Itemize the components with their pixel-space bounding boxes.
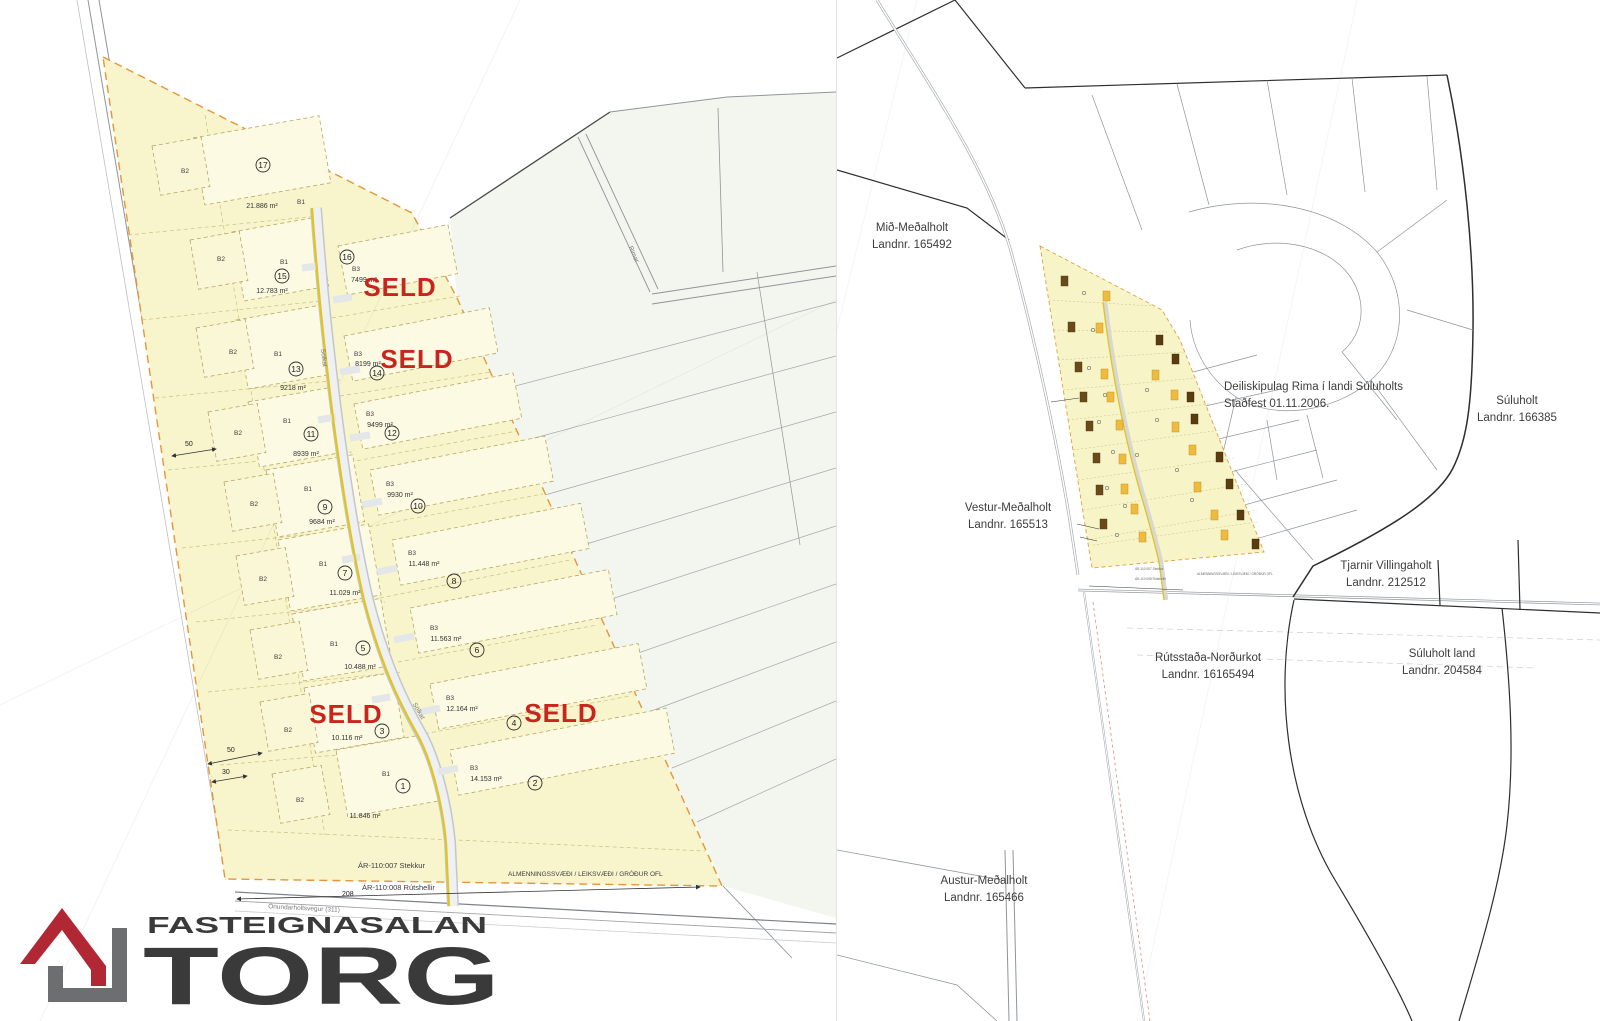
lot-16-number: 16 xyxy=(342,252,352,262)
lot-2-bcode: B3 xyxy=(470,765,478,772)
lot-12-bcode: B3 xyxy=(366,411,374,418)
dim-50b: 50 xyxy=(227,747,235,754)
note-rutshellir: ÁR-110:008 Rútshellir xyxy=(362,883,435,892)
lot-4-number: 4 xyxy=(512,718,517,728)
b1-label: B1 xyxy=(280,259,288,266)
lot-9-area: 9684 m² xyxy=(309,519,335,526)
lot-15-area: 12.783 m² xyxy=(256,288,288,295)
lot-2-area: 14.153 m² xyxy=(470,776,502,783)
mini-note-common: ALMENNINGSSVÆÐI / LEIKSVÆÐI / GRÓÐUR OFL xyxy=(1197,571,1273,576)
lot-2-number: 2 xyxy=(533,778,538,788)
lot-7-area: 11.029 m² xyxy=(330,590,362,597)
b2-label: B2 xyxy=(234,430,242,437)
overview-map: ÁR-110:007 Stekkur ÁR-110:008 Rútshellir… xyxy=(837,0,1600,1021)
lot-10-number: 10 xyxy=(413,501,423,511)
lot-7-number: 7 xyxy=(343,568,348,578)
parcel-suluholt-landnr: Landnr. 166385 xyxy=(1477,412,1557,424)
lot-9-number: 9 xyxy=(323,502,328,512)
dim-50a: 50 xyxy=(185,441,193,448)
parcel-suluholt-land-name: Súluholt land xyxy=(1409,648,1476,660)
lot-17-area: 21.886 m² xyxy=(246,203,278,210)
mini-note-stekkur: ÁR-110:007 Stekkur xyxy=(1135,567,1164,571)
parcel-vestur-medalholt-name: Vestur-Meðalholt xyxy=(965,502,1052,514)
b2-label: B2 xyxy=(259,576,267,583)
lot-1-number: 1 xyxy=(401,781,406,791)
logo-brand-main: TORG xyxy=(143,931,500,1021)
lot-14-bcode: B3 xyxy=(354,351,362,358)
b2-label: B2 xyxy=(181,168,189,175)
lot-13-area: 9218 m² xyxy=(280,385,306,392)
parcel-rutsstada-nordurkot-landnr: Landnr. 16165494 xyxy=(1162,669,1255,681)
lot-12-number: 12 xyxy=(387,428,397,438)
mini-note-rutshellir: ÁR-110:008 Rútshellir xyxy=(1135,577,1167,581)
b1-label: B1 xyxy=(319,561,327,568)
b2-label: B2 xyxy=(274,654,282,661)
b1-label: B1 xyxy=(297,199,305,206)
lot-12-area: 9499 m² xyxy=(367,422,393,429)
lot-10-area: 9930 m² xyxy=(387,492,413,499)
lot-8-number: 8 xyxy=(452,576,457,586)
b2-label: B2 xyxy=(284,727,292,734)
parcel-vestur-medalholt-landnr: Landnr. 165513 xyxy=(968,519,1048,531)
lot-6-number: 6 xyxy=(475,645,480,655)
lot-16-bcode: B3 xyxy=(352,266,360,273)
site-plan-detail-map: Rimar Gaulverjabæjarvegur (33) Önundarho… xyxy=(0,0,836,1021)
lot-10-bcode: B3 xyxy=(386,481,394,488)
b1-label: B1 xyxy=(274,351,282,358)
lot-4-bcode: B3 xyxy=(446,695,454,702)
dim-30: 30 xyxy=(222,769,230,776)
parcel-suluholt-land-landnr: Landnr. 204584 xyxy=(1402,665,1483,677)
lot-11-number: 11 xyxy=(307,429,316,439)
parcel-tjarnir-villingaholt-name: Tjarnir Villingaholt xyxy=(1340,560,1432,572)
overview-map-svg: ÁR-110:007 Stekkur ÁR-110:008 Rútshellir… xyxy=(837,0,1600,1021)
b2-label: B2 xyxy=(229,349,237,356)
lot-8-area: 11.448 m² xyxy=(409,561,441,568)
b1-label: B1 xyxy=(330,641,338,648)
lot-11-area: 8939 m² xyxy=(293,451,319,458)
parcel-suluholt-name: Súluholt xyxy=(1496,395,1538,407)
b1-label: B1 xyxy=(382,771,390,778)
note-stekkur: ÁR-110:007 Stekkur xyxy=(358,861,425,870)
lot-8-bcode: B3 xyxy=(408,550,416,557)
lot-5-number: 5 xyxy=(361,643,366,653)
b1-label: B1 xyxy=(283,418,291,425)
parcel-mid-medalholt-landnr: Landnr. 165492 xyxy=(872,239,952,251)
dim-208: 208 xyxy=(342,891,354,898)
parcel-tjarnir-villingaholt-landnr: Landnr. 212512 xyxy=(1346,577,1426,589)
lot-14-area: 8199 m² xyxy=(355,361,381,368)
seld-lot-4: SELD xyxy=(524,698,597,728)
lot-4-area: 12.164 m² xyxy=(446,706,478,713)
lot-6-bcode: B3 xyxy=(430,625,438,632)
note-common-area: ALMENNINGSSVÆÐI / LEIKSVÆÐI / GRÓÐUR OFL xyxy=(508,869,663,878)
lot-3-area: 10.116 m² xyxy=(332,735,364,742)
site-plan-detail-svg: Rimar Gaulverjabæjarvegur (33) Önundarho… xyxy=(0,0,836,1021)
seld-lot-14: SELD xyxy=(380,344,453,374)
parcel-rutsstada-nordurkot-name: Rútsstaða-Norðurkot xyxy=(1155,652,1262,664)
lot-15-number: 15 xyxy=(277,271,287,281)
rima-note-line1: Deiliskipulag Rima í landi Súluholts xyxy=(1224,381,1403,393)
b1-label: B1 xyxy=(304,486,312,493)
seld-lot-16: SELD xyxy=(363,272,436,302)
property-plan-screenshot: { "logo": { "brand_top": "FASTEIGNASALAN… xyxy=(0,0,1600,1021)
parcel-austur-medalholt-name: Austur-Meðalholt xyxy=(941,875,1029,887)
b2-label: B2 xyxy=(250,501,258,508)
parcel-austur-medalholt-landnr: Landnr. 165466 xyxy=(944,892,1024,904)
lot-13-number: 13 xyxy=(291,364,301,374)
rima-note-line2: Staðfest 01.11.2006. xyxy=(1224,398,1329,410)
lot-17-number: 17 xyxy=(258,160,268,170)
b2-label: B2 xyxy=(217,256,225,263)
parcel-mid-medalholt-name: Mið-Meðalholt xyxy=(876,222,949,234)
lot-1-area: 11.846 m² xyxy=(350,813,382,820)
lot-5-area: 10.488 m² xyxy=(344,664,376,671)
lot-6-area: 11.563 m² xyxy=(431,636,463,643)
b2-label: B2 xyxy=(296,797,304,804)
seld-lot-3: SELD xyxy=(309,699,382,729)
